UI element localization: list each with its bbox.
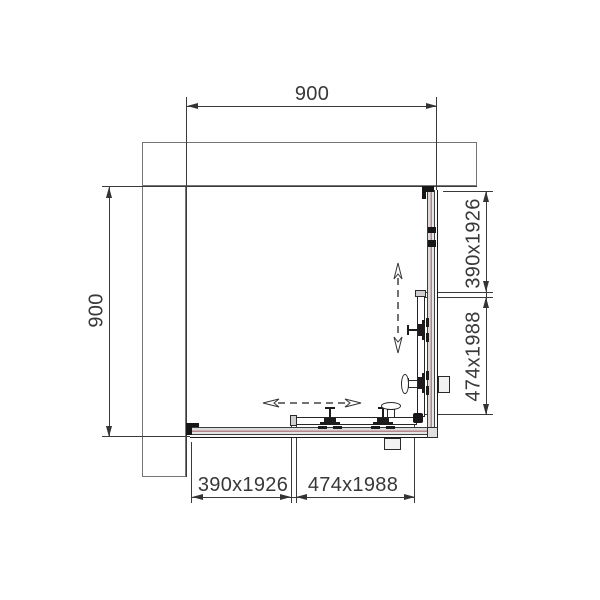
door-handle-bracket-bottom	[384, 438, 401, 450]
bottom-fixed-panel-profile	[190, 427, 437, 438]
left-wall	[142, 186, 186, 477]
corner-connector	[413, 413, 423, 423]
top-wall	[142, 142, 477, 186]
wall-bracket-top-right	[426, 186, 434, 192]
wall-bracket-bottom-left	[186, 427, 192, 435]
rail-corner-joint	[427, 427, 438, 438]
right-sliding-door	[417, 292, 425, 417]
slide-direction-arrow-vertical	[391, 262, 405, 354]
dimension-label-bottom-right: 474x1988	[278, 474, 428, 497]
bottom-sliding-door	[292, 417, 417, 425]
dimension-line-top	[187, 106, 437, 107]
shower-enclosure-plan-drawing: 900 900 390x1926 474x1988 390x1926 474x1…	[0, 0, 600, 600]
dimension-line-left	[109, 187, 110, 437]
dimension-label-top: 900	[237, 83, 387, 106]
arrowhead-up-icon	[106, 187, 112, 198]
door-end-profile	[415, 290, 426, 297]
slide-direction-arrow-horizontal	[262, 396, 362, 410]
glass-clamp	[428, 240, 436, 247]
wall-face-line-top	[102, 186, 477, 187]
dimension-label-right-lower: 474x1988	[463, 282, 486, 432]
arrowhead-left-icon	[187, 103, 198, 109]
dimension-label-left: 900	[86, 236, 109, 386]
wall-face-line-left	[186, 97, 187, 477]
arrowhead-right-icon	[426, 103, 437, 109]
door-knob-right-stem	[408, 380, 418, 388]
door-roller	[318, 407, 342, 431]
door-roller	[407, 318, 431, 342]
door-knob-bottom-stem	[387, 409, 395, 418]
extension-line-top-right	[436, 97, 437, 190]
glass-clamp	[428, 227, 436, 233]
arrowhead-down-icon	[106, 426, 112, 437]
door-handle-bracket-right	[438, 376, 450, 393]
extension-line-left-bottom	[102, 436, 191, 437]
door-end-profile	[290, 415, 297, 426]
